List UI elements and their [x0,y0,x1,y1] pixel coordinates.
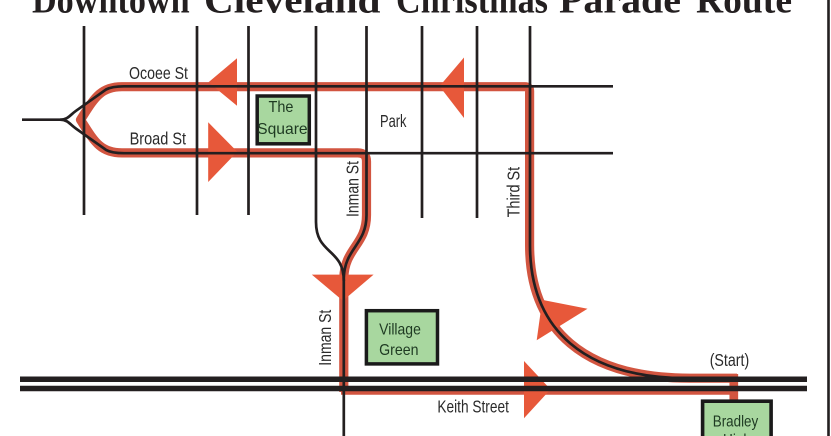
svg-text:Square: Square [257,121,308,138]
svg-text:The: The [269,99,294,116]
svg-text:Park: Park [380,111,407,131]
svg-text:Bradley: Bradley [713,414,758,431]
svg-text:Third St: Third St [504,167,524,218]
svg-text:Parade: Parade [559,0,681,21]
svg-text:Cleveland: Cleveland [204,0,381,21]
svg-text:Christmas: Christmas [396,0,548,21]
svg-text:Village: Village [379,321,421,338]
svg-text:Inman St: Inman St [343,161,363,217]
svg-text:Broad St: Broad St [130,128,187,148]
svg-text:(Start): (Start) [710,350,750,370]
svg-text:Downtown: Downtown [32,0,190,21]
svg-text:Inman St: Inman St [315,310,335,366]
svg-text:Green: Green [379,342,418,359]
svg-text:High: High [723,432,751,436]
svg-text:Keith Street: Keith Street [437,396,509,416]
svg-text:Ocoee St: Ocoee St [129,63,188,83]
svg-text:Route: Route [696,0,792,21]
